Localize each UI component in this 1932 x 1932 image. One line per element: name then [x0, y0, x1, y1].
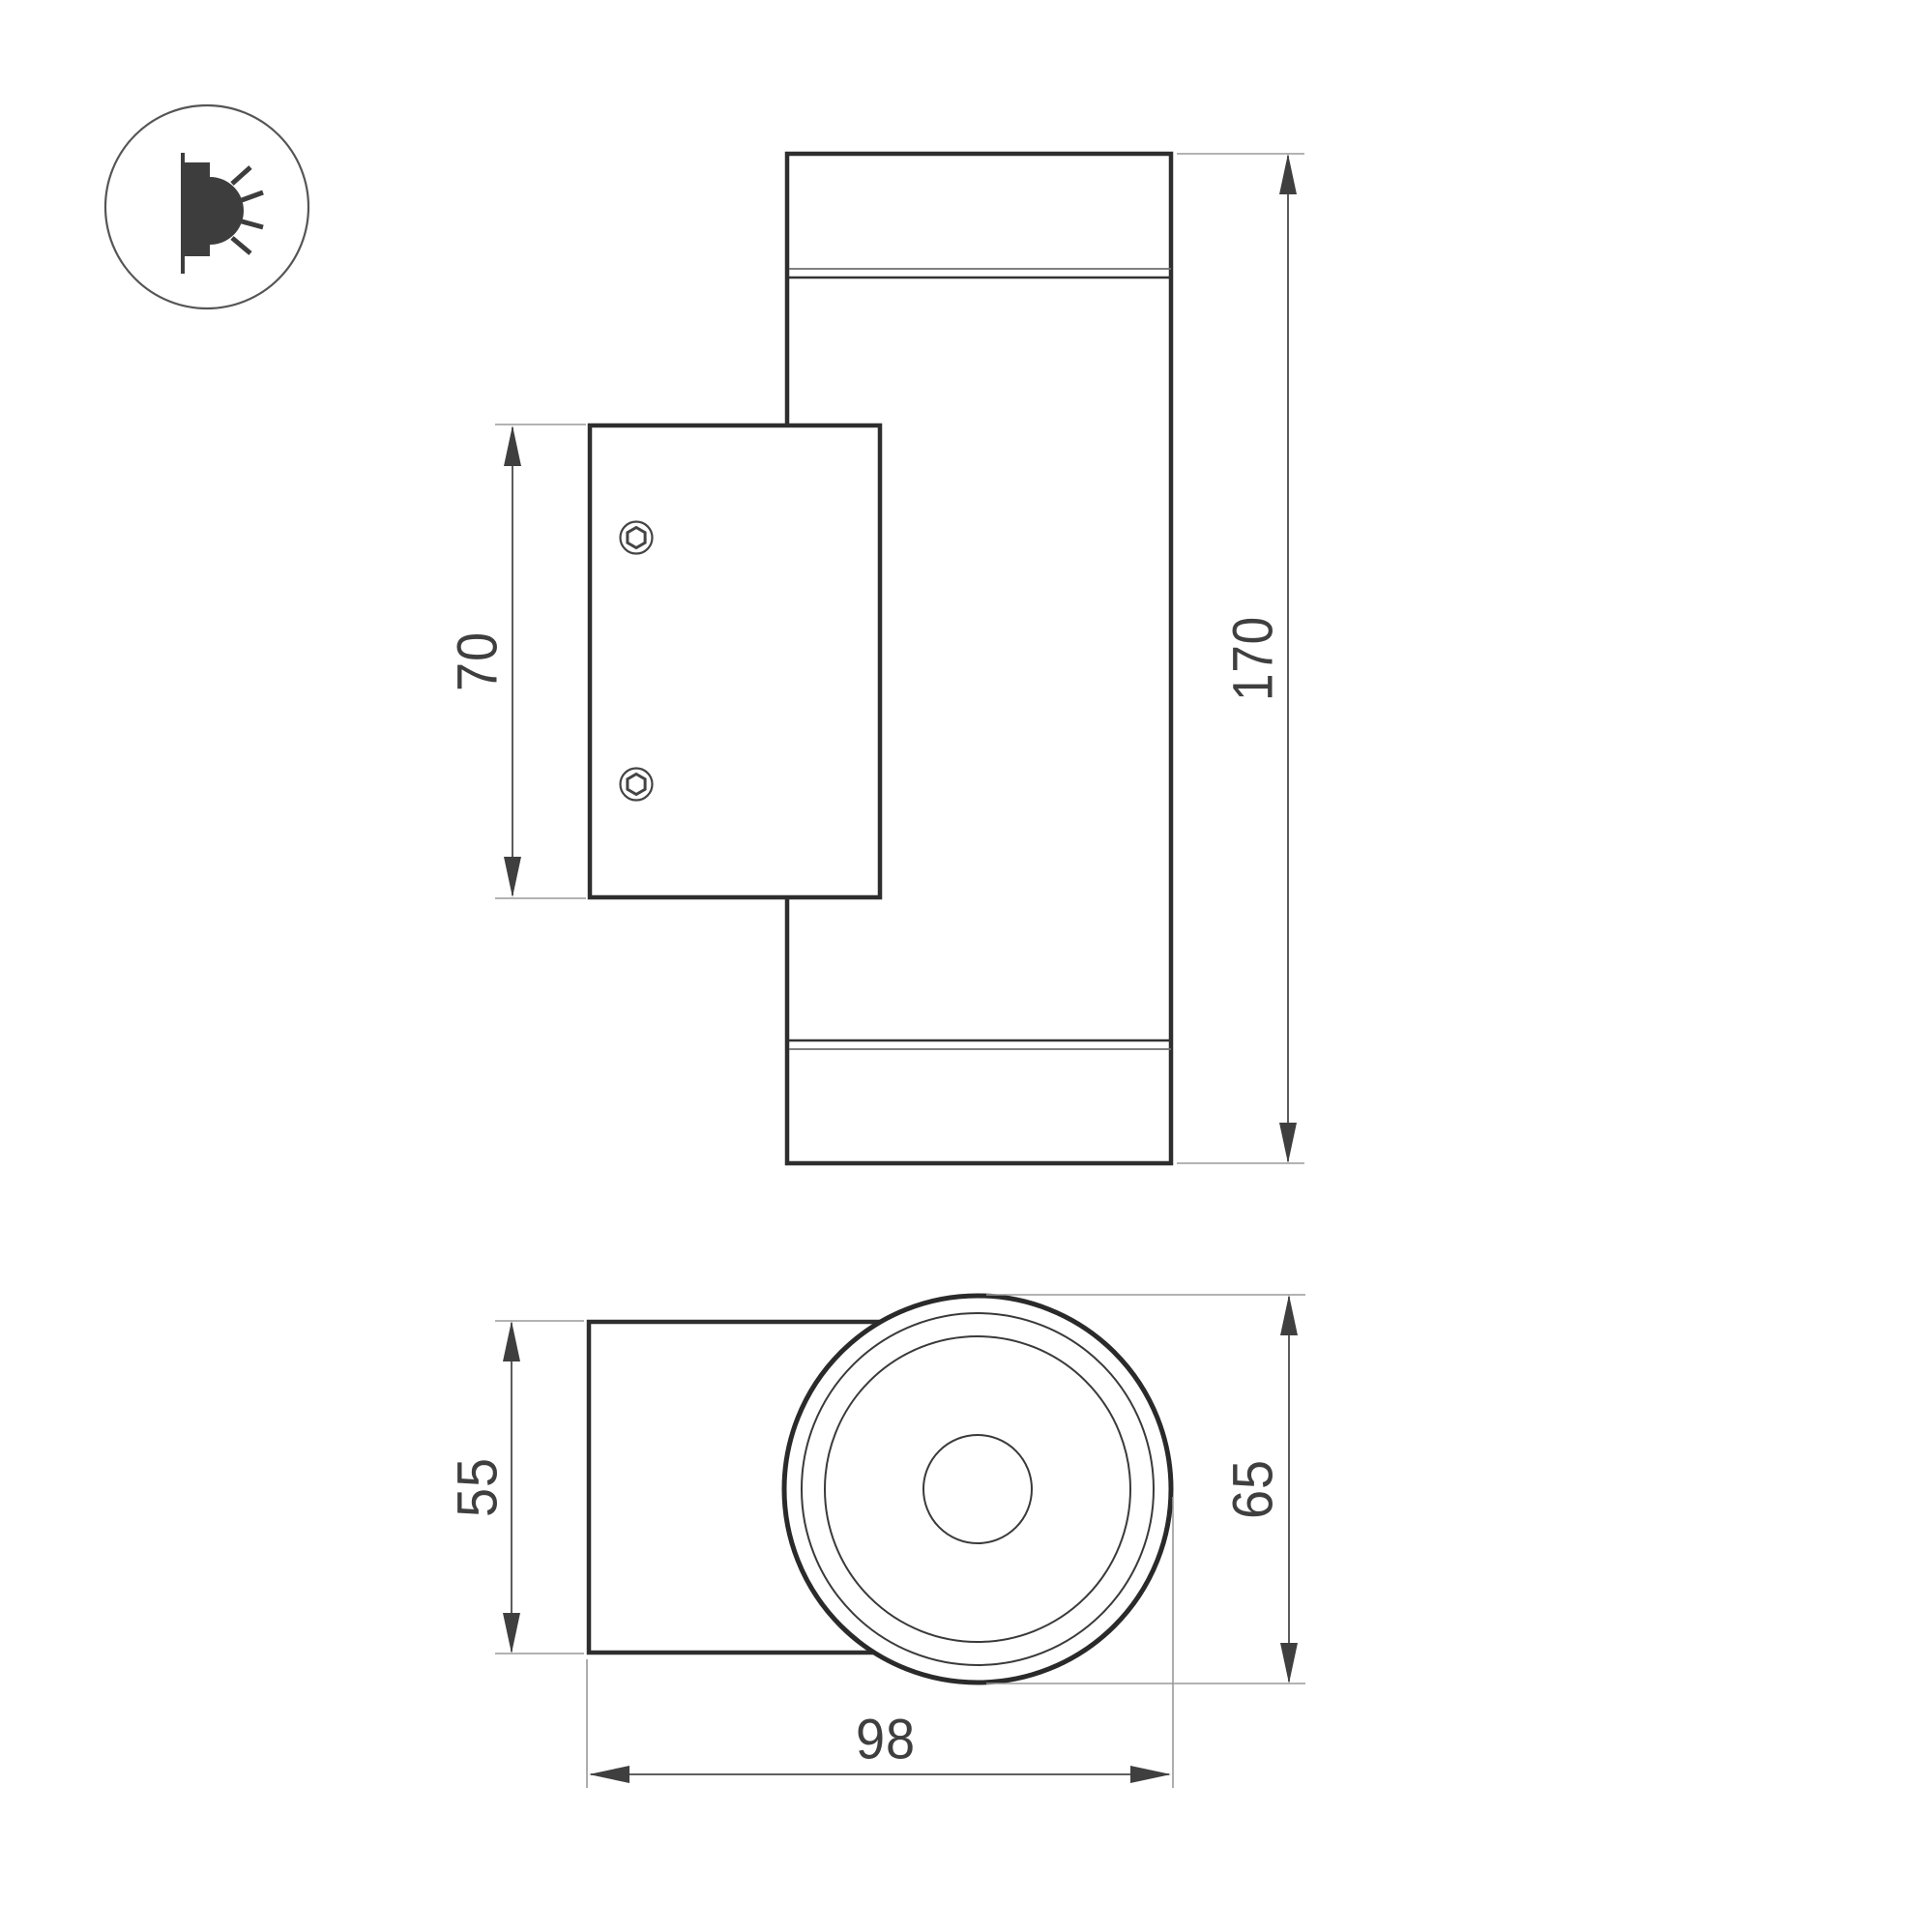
arrow-up-icon [504, 425, 521, 466]
arrow-down-icon [504, 857, 521, 897]
dimension-plate-height: 70 [447, 424, 587, 898]
dimension-label-70: 70 [447, 631, 510, 691]
dimension-label-98: 98 [856, 1709, 916, 1771]
legend-lamp-body [185, 162, 210, 256]
arrow-down-icon [503, 1613, 520, 1654]
mounting-plate-outline [590, 425, 880, 897]
technical-drawing-page: 70 170 [0, 0, 1932, 1932]
dimension-bracket-height: 55 [447, 1321, 585, 1654]
dimension-overall-height: 170 [1177, 154, 1304, 1163]
side-view: 70 170 [447, 154, 1305, 1163]
light-ray-icon [232, 238, 250, 253]
wall-mounted-light-icon [105, 105, 308, 308]
dimension-label-170: 170 [1222, 616, 1285, 701]
mounting-screw-top [621, 522, 653, 554]
mounting-screw-bottom [621, 769, 653, 801]
dimension-label-55: 55 [447, 1457, 510, 1517]
arrow-up-icon [1279, 154, 1297, 194]
arrow-right-icon [1130, 1766, 1171, 1783]
light-ray-icon [242, 192, 263, 200]
technical-drawing-canvas: 70 170 [0, 0, 1932, 1932]
legend-light-beam [210, 177, 244, 245]
arrow-down-icon [1279, 1123, 1297, 1163]
dimension-label-65: 65 [1222, 1459, 1285, 1519]
lamp-face-outer-circle [784, 1296, 1171, 1683]
arrow-up-icon [1280, 1295, 1298, 1335]
arrow-left-icon [589, 1766, 629, 1783]
light-ray-icon [232, 167, 250, 184]
arrow-down-icon [1280, 1643, 1298, 1683]
plan-view: 55 65 98 [447, 1295, 1306, 1788]
arrow-up-icon [503, 1321, 520, 1361]
light-ray-icon [242, 221, 263, 227]
